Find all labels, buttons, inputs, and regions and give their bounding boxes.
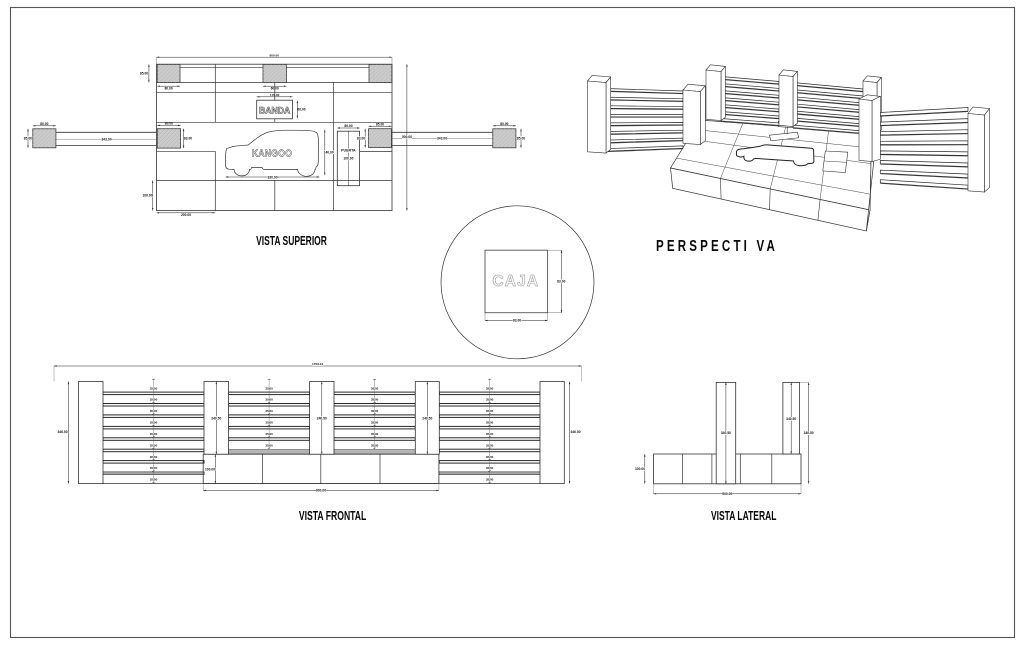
svg-text:35.00: 35.00: [371, 443, 379, 447]
svg-text:35.00: 35.00: [371, 421, 379, 425]
svg-text:CAJA: CAJA: [492, 273, 539, 290]
svg-text:600.00: 600.00: [316, 489, 326, 493]
svg-text:BANDA: BANDA: [259, 105, 291, 115]
svg-text:35.00: 35.00: [371, 432, 379, 436]
svg-text:1703.12: 1703.12: [312, 362, 323, 366]
svg-text:35.00: 35.00: [265, 443, 273, 447]
svg-text:35.00: 35.00: [150, 421, 158, 425]
svg-text:240.50: 240.50: [317, 416, 327, 420]
svg-text:35.00: 35.00: [486, 443, 494, 447]
svg-text:35.00: 35.00: [150, 478, 158, 482]
svg-text:83.00: 83.00: [557, 280, 565, 284]
svg-text:VISTA LATERAL: VISTA LATERAL: [711, 509, 777, 523]
svg-text:35.00: 35.00: [150, 409, 158, 413]
svg-text:500.00: 500.00: [402, 135, 412, 139]
svg-text:83.00: 83.00: [513, 319, 521, 323]
svg-text:35.00: 35.00: [265, 432, 273, 436]
svg-text:80.00: 80.00: [165, 122, 173, 126]
svg-text:100.00: 100.00: [635, 467, 645, 471]
svg-text:35.00: 35.00: [265, 398, 273, 402]
svg-text:35.00: 35.00: [486, 432, 494, 436]
svg-text:140.00: 140.00: [324, 150, 334, 154]
svg-text:35.00: 35.00: [486, 455, 494, 459]
svg-text:35.00: 35.00: [150, 432, 158, 436]
svg-text:80.00: 80.00: [40, 122, 48, 126]
svg-text:85.00: 85.00: [140, 71, 148, 75]
svg-text:170.00: 170.00: [270, 93, 280, 97]
svg-text:35.00: 35.00: [371, 398, 379, 402]
svg-text:35.00: 35.00: [486, 398, 494, 402]
svg-text:85.00: 85.00: [376, 122, 384, 126]
svg-text:35.00: 35.00: [265, 421, 273, 425]
svg-text:60.00: 60.00: [271, 86, 279, 90]
svg-text:PUERTA: PUERTA: [341, 149, 356, 153]
svg-text:100.00: 100.00: [343, 157, 353, 161]
svg-text:800.00: 800.00: [269, 53, 279, 57]
svg-text:100.00: 100.00: [142, 194, 152, 198]
svg-text:35.00: 35.00: [150, 398, 158, 402]
svg-text:35.00: 35.00: [150, 466, 158, 470]
svg-text:35.00: 35.00: [486, 386, 494, 390]
svg-text:340.50: 340.50: [804, 431, 814, 435]
svg-text:VISTA FRONTAL: VISTA FRONTAL: [299, 509, 367, 523]
svg-text:35.00: 35.00: [486, 421, 494, 425]
svg-text:330.00: 330.00: [267, 175, 277, 179]
svg-text:240.50: 240.50: [422, 416, 432, 420]
svg-text:KANGOO: KANGOO: [252, 148, 292, 160]
svg-text:35.00: 35.00: [486, 478, 494, 482]
svg-text:35.00: 35.00: [150, 386, 158, 390]
svg-text:346.50: 346.50: [57, 430, 67, 434]
svg-text:340.50: 340.50: [721, 431, 731, 435]
svg-text:343.00: 343.00: [437, 137, 447, 141]
svg-text:35.00: 35.00: [371, 386, 379, 390]
svg-text:35.00: 35.00: [486, 409, 494, 413]
svg-text:346.50: 346.50: [570, 430, 580, 434]
svg-text:343.00: 343.00: [101, 137, 111, 141]
svg-text:100.00: 100.00: [205, 467, 215, 471]
svg-text:35.00: 35.00: [265, 386, 273, 390]
svg-text:80.00: 80.00: [500, 122, 508, 126]
svg-text:35.00: 35.00: [486, 466, 494, 470]
svg-text:80.00: 80.00: [344, 124, 352, 128]
svg-text:240.50: 240.50: [211, 416, 221, 420]
svg-text:85.00: 85.00: [24, 136, 32, 140]
svg-text:35.00: 35.00: [371, 409, 379, 413]
svg-text:35.00: 35.00: [150, 443, 158, 447]
svg-text:85.00: 85.00: [517, 136, 525, 140]
svg-text:35.00: 35.00: [265, 409, 273, 413]
svg-text:500.00: 500.00: [722, 492, 732, 496]
svg-text:340.50: 340.50: [786, 417, 796, 421]
svg-text:200.00: 200.00: [181, 213, 191, 217]
svg-text:80.00: 80.00: [164, 86, 172, 90]
svg-text:VISTA SUPERIOR: VISTA SUPERIOR: [256, 234, 327, 248]
svg-text:83.00: 83.00: [357, 136, 365, 140]
svg-text:35.00: 35.00: [150, 455, 158, 459]
svg-text:83.00: 83.00: [184, 136, 192, 140]
svg-text:60.00: 60.00: [297, 107, 305, 111]
svg-text:PERSPECTI VA: PERSPECTI VA: [656, 237, 778, 254]
